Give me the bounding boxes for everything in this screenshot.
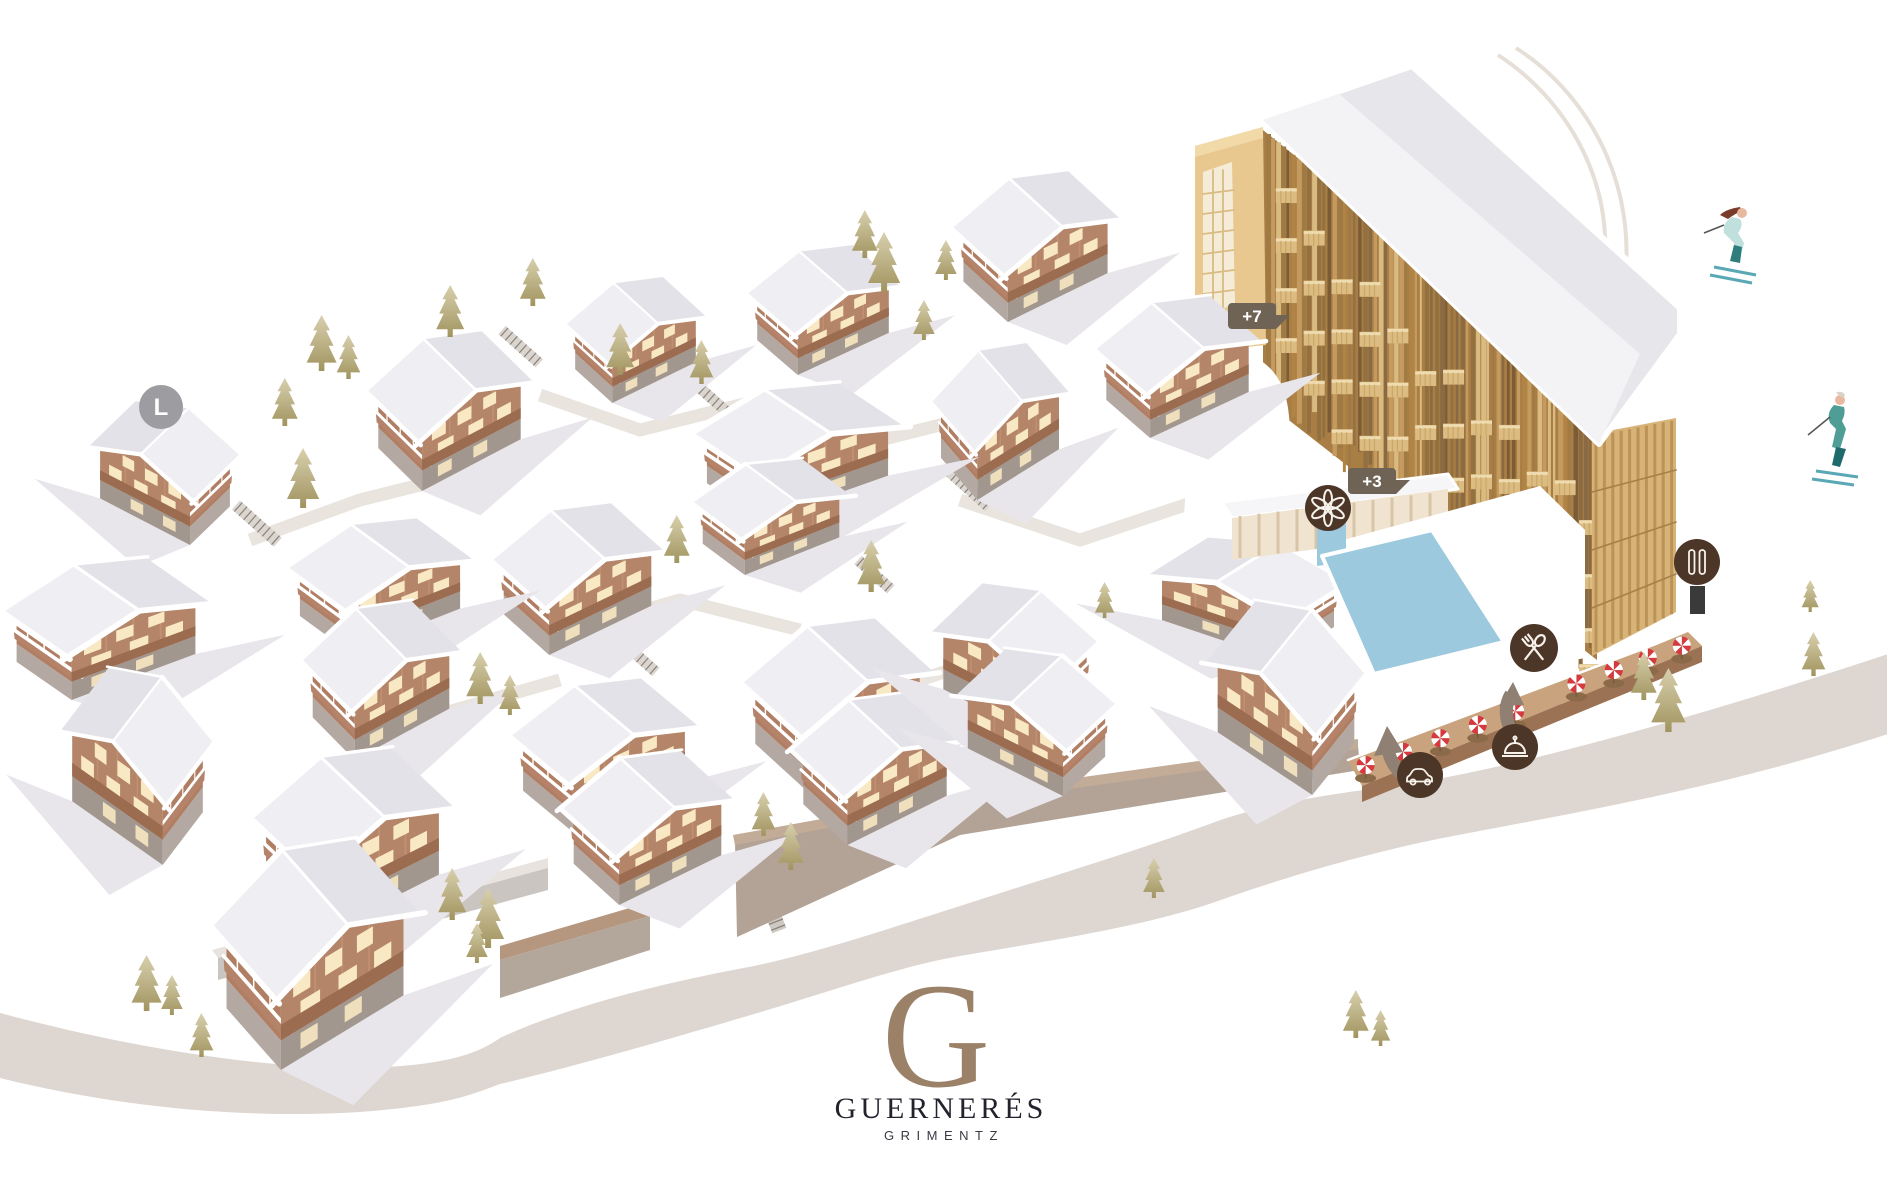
svg-text:+3: +3 xyxy=(1362,472,1381,491)
svg-text:L: L xyxy=(154,394,169,421)
svg-text:+7: +7 xyxy=(1242,307,1261,326)
svg-text:GRIMENTZ: GRIMENTZ xyxy=(884,1128,1004,1143)
svg-text:GUERNERÉS: GUERNERÉS xyxy=(835,1092,1048,1125)
